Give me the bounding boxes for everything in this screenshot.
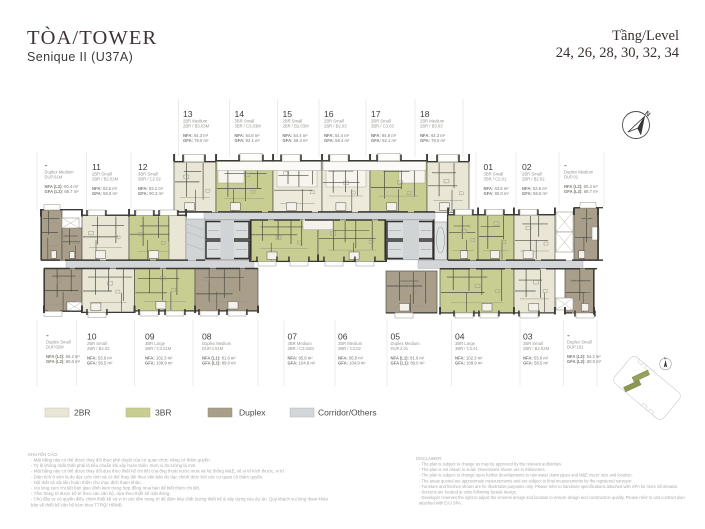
svg-text:GFA: 58.5 m²: GFA: 58.5 m² (523, 361, 549, 366)
svg-text:GFA: 92.1 m²: GFA: 92.1 m² (371, 138, 397, 143)
svg-text:2BR / B3.03: 2BR / B3.03 (420, 123, 443, 128)
svg-text:2BR / B2.03: 2BR / B2.03 (324, 123, 347, 128)
svg-text:2BR / B2.03M: 2BR / B2.03M (283, 123, 310, 128)
svg-text:GFA: 56.5 m²: GFA: 56.5 m² (87, 361, 113, 366)
svg-text:3BR / C3.03M: 3BR / C3.03M (235, 123, 262, 128)
svg-text:3BR / C2.02: 3BR / C2.02 (138, 176, 161, 181)
svg-text:KHUYẾN CÁO:: KHUYẾN CÁO: (28, 452, 58, 457)
svg-text:02: 02 (522, 162, 532, 172)
svg-text:05: 05 (391, 332, 401, 342)
svg-text:- Diện tích ở trên là đo đạc: - Diện tích ở trên là đo đạc ước tính và… (31, 474, 263, 479)
svg-text:DUP.102: DUP.102 (567, 344, 584, 349)
svg-text:- Mặt bằng này có thể được th: - Mặt bằng này có thể được thay đổi dựa … (31, 469, 285, 474)
svg-text:- Tỷ lệ không nhất thiết phải: - Tỷ lệ không nhất thiết phải là tiêu ch… (31, 463, 197, 468)
svg-text:08: 08 (202, 332, 212, 342)
svg-text:- Screens are located at unit: - Screens are located at units following… (419, 490, 517, 495)
svg-text:- Furniture and finishes show: - Furniture and finishes shown are for i… (419, 484, 678, 489)
svg-text:Tầng/Level: Tầng/Level (612, 28, 679, 44)
svg-text:- The areas quoted are approx: - The areas quoted are approximate measu… (419, 478, 632, 483)
svg-text:GFA (L1): 89.0 m²: GFA (L1): 89.0 m² (202, 361, 237, 366)
svg-text:03: 03 (523, 332, 533, 342)
svg-text:GFA (L2): 68.7 m²: GFA (L2): 68.7 m² (45, 189, 80, 194)
svg-text:3BR / C3.01: 3BR / C3.01 (455, 346, 478, 351)
svg-text:- Vui lòng xem chi tiết bàn g: - Vui lòng xem chi tiết bàn giao đính kè… (31, 486, 200, 491)
svg-text:2BR / B2.02: 2BR / B2.02 (87, 346, 110, 351)
svg-text:3BR / C2.01: 3BR / C2.01 (484, 176, 507, 181)
svg-text:- Chủ đầu tư có quyền điều ch: - Chủ đầu tư có quyền điều chỉnh thiết k… (31, 497, 329, 502)
svg-text:DUP.01: DUP.01 (564, 174, 579, 179)
svg-text:2BR / B2.02M: 2BR / B2.02M (92, 176, 119, 181)
svg-text:06: 06 (338, 332, 348, 342)
svg-text:3BR: 3BR (155, 408, 172, 418)
svg-text:- Nội thất và vật liệu hoàn t: - Nội thất và vật liệu hoàn thiện cho mụ… (31, 480, 142, 485)
svg-text:GFA: 104.9 m²: GFA: 104.9 m² (338, 361, 366, 366)
svg-text:12: 12 (138, 162, 148, 172)
svg-text:GFA: 78.0 m²: GFA: 78.0 m² (420, 138, 446, 143)
svg-text:24, 26, 28, 30, 32, 34: 24, 26, 28, 30, 32, 34 (556, 45, 680, 61)
svg-text:-: - (564, 160, 567, 170)
svg-text:16: 16 (324, 109, 334, 119)
svg-text:GFA: 90.3 m²: GFA: 90.3 m² (138, 191, 164, 196)
svg-text:DUP.2.01: DUP.2.01 (391, 346, 409, 351)
svg-text:GFA: 58.4 m²: GFA: 58.4 m² (324, 138, 350, 143)
svg-text:DUP.2.01M: DUP.2.01M (202, 346, 224, 351)
svg-text:- The plan is subject to chan: - The plan is subject to change upon fur… (419, 473, 633, 478)
svg-text:DISCLAIMER:: DISCLAIMER: (416, 456, 442, 461)
svg-text:GFA: 58.5 m²: GFA: 58.5 m² (92, 191, 118, 196)
svg-text:11: 11 (92, 162, 101, 172)
svg-text:DUP.01M: DUP.01M (45, 174, 63, 179)
svg-text:GFA (L2): 60.0 m²: GFA (L2): 60.0 m² (46, 359, 81, 364)
svg-text:TÒA/TOWER: TÒA/TOWER (27, 25, 157, 49)
svg-text:GFA: 104.8 m²: GFA: 104.8 m² (288, 361, 316, 366)
svg-text:09: 09 (145, 332, 155, 342)
svg-text:17: 17 (371, 109, 381, 119)
svg-text:2BR / B3.03M: 2BR / B3.03M (183, 123, 210, 128)
svg-text:GFA (L2): 60.0 m²: GFA (L2): 60.0 m² (567, 359, 602, 364)
svg-text:GFA (L1): 89.0 m²: GFA (L1): 89.0 m² (391, 361, 426, 366)
svg-text:GFA: 58.4 m²: GFA: 58.4 m² (283, 138, 309, 143)
svg-text:GFA: 109.9 m²: GFA: 109.9 m² (145, 361, 173, 366)
svg-text:GFA: 92.1 m²: GFA: 92.1 m² (235, 138, 261, 143)
svg-text:3BR / C3.02: 3BR / C3.02 (338, 346, 361, 351)
svg-text:attached with EAJ SPA.: attached with EAJ SPA. (419, 501, 462, 506)
svg-text:GFA: 109.9 m²: GFA: 109.9 m² (455, 361, 483, 366)
svg-text:- Mặt bằng này có thể được th: - Mặt bằng này có thể được thay đổi theo… (31, 458, 211, 463)
svg-text:GFA: 80.0 m²: GFA: 80.0 m² (484, 191, 510, 196)
svg-text:2BR / B2.02: 2BR / B2.02 (522, 176, 545, 181)
svg-text:Corridor/Others: Corridor/Others (318, 408, 377, 418)
svg-text:14: 14 (235, 109, 245, 119)
svg-text:N: N (664, 357, 667, 361)
svg-text:3BR / C3.01M: 3BR / C3.01M (145, 346, 172, 351)
svg-text:GFA: 58.6 m²: GFA: 58.6 m² (522, 191, 548, 196)
svg-text:07: 07 (288, 332, 298, 342)
svg-text:18: 18 (420, 109, 430, 119)
svg-text:-: - (46, 330, 49, 340)
svg-text:Duplex: Duplex (239, 408, 266, 418)
svg-text:- The plan is subject to chan: - The plan is subject to change as may b… (419, 462, 562, 467)
svg-text:- Developer reserves the righ: - Developer reserves the right to adjust… (419, 495, 685, 500)
svg-text:3BR / C3.03: 3BR / C3.03 (371, 123, 394, 128)
svg-text:GFA (L2): 68.7 m²: GFA (L2): 68.7 m² (564, 189, 599, 194)
svg-text:DUP.02M: DUP.02M (46, 344, 64, 349)
svg-text:10: 10 (87, 332, 97, 342)
svg-text:- The plan is not drawn to sc: - The plan is not drawn to scale. Dimens… (419, 467, 546, 472)
svg-text:2BR / B2.02M: 2BR / B2.02M (523, 346, 550, 351)
svg-text:bản vẽ thiết kế căn hộ kèm the: bản vẽ thiết kế căn hộ kèm theo TTRQ/ HĐ… (31, 502, 123, 507)
svg-text:- Tấm trang trí được bố trí t: - Tấm trang trí được bố trí theo các căn… (31, 491, 171, 496)
svg-text:-: - (567, 330, 570, 340)
svg-text:01: 01 (484, 162, 494, 172)
svg-text:3BR / C3.02M: 3BR / C3.02M (288, 346, 315, 351)
svg-text:GFA: 78.0 m²: GFA: 78.0 m² (183, 138, 209, 143)
svg-text:Senique II (U37A): Senique II (U37A) (27, 50, 133, 64)
svg-text:-: - (45, 160, 48, 170)
svg-text:04: 04 (455, 332, 465, 342)
svg-text:2BR: 2BR (74, 408, 91, 418)
svg-text:13: 13 (183, 109, 193, 119)
svg-text:15: 15 (283, 109, 293, 119)
